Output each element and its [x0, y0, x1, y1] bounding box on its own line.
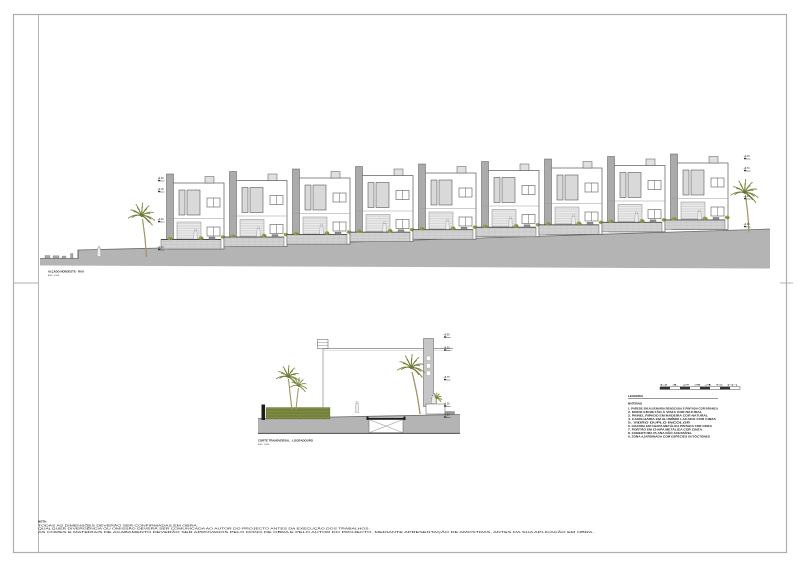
level-marker-label: +9.15 — [744, 155, 751, 158]
level-marker: +5.75 — [444, 376, 451, 380]
front-garden-wall — [413, 230, 473, 240]
border-frame — [14, 15, 787, 553]
shrub — [422, 228, 425, 230]
person-head — [699, 209, 701, 211]
notes-lines: TODAS AS DIMENSÕES DEVERÃO SER CONFIRMAD… — [38, 525, 595, 534]
palm-crown-center — [410, 367, 412, 369]
palm-crown-center — [141, 215, 143, 217]
scale-bar-segment — [660, 387, 670, 390]
slatted-panel — [429, 212, 453, 229]
tower-slit-window — [427, 364, 431, 369]
shrub — [327, 232, 330, 234]
person-body — [635, 214, 639, 223]
legend-item: 2. MURO EM BETÃO À VISTA COR NATURAL — [628, 411, 703, 414]
legend-item: 8. COBERTURA PLANA NÃO ACESSÍVEL — [628, 432, 693, 435]
planter-box — [426, 404, 445, 414]
chimney — [205, 177, 214, 184]
level-marker-label: +6.60 — [158, 177, 165, 180]
chimney — [520, 164, 529, 171]
house-module — [476, 162, 541, 237]
person-head — [195, 229, 197, 231]
meter-box — [713, 217, 719, 220]
front-garden-wall — [350, 232, 410, 242]
front-garden-wall — [161, 240, 221, 250]
palm-frond — [290, 385, 298, 387]
front-garden-wall — [476, 227, 536, 237]
person-head — [98, 246, 100, 248]
notes-block: NOTA: TODAS AS DIMENSÕES DEVERÃO SER CON… — [38, 520, 595, 534]
level-marker-label: +5.95 — [744, 195, 751, 198]
meter-box — [461, 227, 467, 230]
tower-slit-window — [427, 356, 431, 361]
palm-trunk — [296, 388, 299, 410]
level-marker-label: +8.95 — [444, 334, 451, 337]
level-marker: +3.40 — [158, 218, 165, 222]
person-head — [636, 212, 638, 214]
level-marker-label: +6.15 — [158, 188, 165, 191]
upper-window-pane — [439, 180, 452, 205]
person-body — [446, 221, 450, 230]
legend-subtitle: MATERIAIS — [628, 401, 642, 405]
slatted-panel — [618, 205, 642, 222]
slatted-panel — [177, 222, 201, 239]
shrub — [642, 220, 645, 222]
legend-title: LEGENDA — [628, 394, 644, 398]
level-marker: +6.15 — [158, 188, 165, 192]
upper-window-pane — [691, 170, 704, 195]
shrub — [548, 223, 551, 225]
upper-window-pane — [376, 183, 389, 208]
chimney — [331, 172, 340, 179]
legend-item: 5. VIDRO DUPLO INCOLOR — [628, 423, 691, 425]
upper-window-pane — [250, 188, 263, 213]
elevation-caption: ALÇADO NORDESTE - RUA — [48, 270, 85, 274]
upper-window-pane — [305, 185, 311, 210]
palm-crown-center — [287, 376, 289, 378]
upper-window-pane — [179, 190, 185, 215]
ramp-post — [404, 417, 406, 421]
upper-window-pane — [620, 173, 626, 198]
shrub — [516, 225, 519, 227]
person-figure — [355, 401, 359, 412]
chimney — [646, 159, 655, 166]
slatted-panel — [555, 207, 579, 224]
chimney — [268, 174, 277, 181]
section-caption: CORTE TRANSVERSAL - LOGRADOURO — [258, 439, 314, 443]
person-body — [432, 396, 436, 404]
level-marker-label: +8.70 — [744, 167, 751, 170]
front-garden-wall — [539, 225, 599, 235]
level-marker: +3.05 — [444, 403, 451, 407]
slatted-panel — [303, 217, 327, 234]
shrub — [727, 217, 730, 219]
stair-tower — [419, 164, 426, 237]
stair-tower — [482, 162, 489, 235]
shrub — [233, 235, 236, 237]
level-marker: +8.50 — [444, 347, 451, 351]
chimney — [709, 157, 718, 164]
level-marker: +5.95 — [744, 195, 751, 199]
shrub — [705, 218, 708, 220]
stair-tower — [671, 154, 678, 227]
upper-window-pane — [683, 170, 689, 195]
person-head — [447, 219, 449, 221]
person-head — [356, 401, 358, 403]
person-head — [510, 217, 512, 219]
sheet-frame — [14, 15, 794, 553]
meter-box — [398, 230, 404, 233]
stair-tower — [608, 157, 615, 230]
legend-item: 6. GUARDA EM CHAPA METÁLICA PINTADA COR … — [628, 425, 712, 428]
street-object — [71, 254, 74, 259]
person-head — [573, 214, 575, 216]
section-caption-scale: ESC. 1:200 — [258, 444, 270, 446]
house-module — [287, 169, 352, 244]
meter-box — [335, 232, 341, 235]
level-marker-label: +5.75 — [444, 376, 451, 379]
boundary-wall-section — [262, 405, 266, 421]
level-marker: +8.95 — [444, 334, 451, 338]
person-body — [320, 226, 324, 235]
person-body — [257, 229, 261, 238]
stair-tower — [293, 169, 300, 242]
level-marker-label: +2.60 — [444, 414, 451, 417]
person-body — [698, 211, 702, 220]
house-module — [350, 167, 415, 242]
meter-box — [587, 222, 593, 225]
upper-window-pane — [313, 185, 326, 210]
level-marker-label: +3.05 — [444, 403, 451, 406]
scale-bar-segment — [720, 387, 730, 390]
scale-bar-segment — [680, 387, 690, 390]
upper-window-pane — [368, 183, 374, 208]
shrub — [674, 218, 677, 220]
stair-tower — [545, 159, 552, 232]
legend-item: 3. PAINEL RIPADO EM MADEIRA COR NATURAL — [628, 414, 709, 417]
level-marker-label: +0.70 — [158, 246, 165, 249]
drawing-canvas: +6.60+6.15+3.40+0.70+9.15+8.70+5.95+3.25… — [0, 0, 800, 566]
person-head — [321, 224, 323, 226]
shrub — [485, 226, 488, 228]
person-figure — [97, 246, 101, 257]
palm-crown-center — [436, 397, 438, 399]
person-body — [383, 224, 387, 233]
stair-tower — [167, 174, 174, 247]
chimney — [394, 169, 403, 176]
palm-crown-center — [298, 385, 300, 387]
legend-scale-bar — [660, 387, 740, 390]
notes-title: NOTA: — [38, 520, 47, 524]
upper-window-pane — [242, 188, 248, 213]
front-garden-wall — [287, 235, 347, 245]
elevation-caption-scale: ESC. 1:200 — [48, 275, 60, 277]
meter-box — [272, 235, 278, 238]
slatted-panel — [681, 202, 705, 219]
legend: 0 1 2 3 4 5 m LEGENDA MATERIAIS 1. PARED… — [628, 385, 740, 439]
palm-trunk — [289, 379, 293, 410]
legend-item: 4. CAIXILHARIA EM ALUMÍNIO LACADO COR CI… — [628, 418, 716, 421]
shrub — [201, 237, 204, 239]
upper-window-pane — [431, 180, 437, 205]
level-marker: +6.60 — [158, 177, 165, 181]
person-body — [194, 231, 198, 240]
shrub — [264, 235, 267, 237]
person-head — [433, 394, 435, 396]
house-module — [539, 159, 604, 234]
palm-trunk — [412, 372, 420, 414]
slatted-panel — [240, 220, 264, 237]
note-line: AS CORES E MATERIAIS DE ACABAMENTO DEVER… — [38, 531, 595, 534]
person-body — [509, 219, 513, 228]
level-marker: +9.15 — [744, 155, 751, 159]
upper-window-pane — [565, 175, 578, 200]
palm-crown-center — [744, 192, 746, 194]
meter-box — [209, 237, 215, 240]
meter-box — [650, 220, 656, 223]
house-module — [665, 154, 730, 229]
person-body — [97, 248, 101, 257]
front-garden-wall — [665, 220, 725, 230]
slatted-panel — [492, 210, 516, 227]
house-module — [161, 174, 226, 249]
street-object — [62, 256, 66, 258]
front-garden-wall — [224, 237, 284, 247]
level-marker: +3.25 — [744, 223, 751, 227]
level-marker: +8.70 — [744, 167, 751, 171]
scale-bar-segment — [700, 387, 710, 390]
level-marker-label: +8.50 — [444, 347, 451, 350]
stair-tower — [230, 172, 237, 245]
meter-box — [524, 225, 530, 228]
stair-tower — [356, 167, 363, 240]
upper-window-pane — [628, 173, 641, 198]
house-module — [602, 157, 667, 232]
person-head — [258, 226, 260, 228]
shrub — [170, 238, 173, 240]
shrub — [453, 228, 456, 230]
hedge — [266, 408, 330, 420]
chimney — [457, 167, 466, 174]
level-marker-label: +3.25 — [744, 223, 751, 226]
house-module — [413, 164, 478, 239]
upper-window-pane — [557, 175, 563, 200]
shrub — [296, 233, 299, 235]
chimney — [583, 162, 592, 169]
section-vegetation-figures — [276, 354, 442, 414]
person-body — [355, 404, 359, 413]
legend-item: 1. PAREDE EM ALVENARIA REBOCADA E PINTAD… — [628, 407, 718, 410]
person-head — [384, 222, 386, 224]
upper-window-pane — [187, 190, 200, 215]
shrub — [579, 223, 582, 225]
legend-item: 9. ZONA AJARDINADA COM ESPÉCIES AUTÓCTON… — [628, 436, 711, 439]
slatted-panel — [366, 215, 390, 232]
ramp-post — [367, 417, 369, 421]
tower-slit-window — [427, 371, 431, 376]
scale-bar-labels: 0 1 2 3 4 5 m — [660, 385, 740, 387]
shrub — [611, 221, 614, 223]
upper-window-pane — [502, 178, 515, 203]
pergola-post-cap — [318, 340, 329, 349]
person-body — [572, 216, 576, 225]
drawing-sheet: +6.60+6.15+3.40+0.70+9.15+8.70+5.95+3.25… — [0, 0, 800, 566]
house-module — [224, 172, 289, 247]
upper-window-pane — [494, 178, 500, 203]
section-level-markers: +8.95+8.50+5.75+3.05+2.60 — [444, 334, 451, 418]
street-object — [53, 256, 59, 258]
front-garden-wall — [602, 222, 662, 232]
shrub — [359, 230, 362, 232]
legend-item: 7. PORTÃO EM CHAPA METÁLICA COR CINZA — [628, 429, 702, 432]
level-marker-label: +3.40 — [158, 218, 165, 221]
shrub — [390, 230, 393, 232]
cross-section — [258, 339, 460, 434]
legend-items: 1. PAREDE EM ALVENARIA REBOCADA E PINTAD… — [628, 407, 718, 438]
street-object — [45, 256, 50, 259]
